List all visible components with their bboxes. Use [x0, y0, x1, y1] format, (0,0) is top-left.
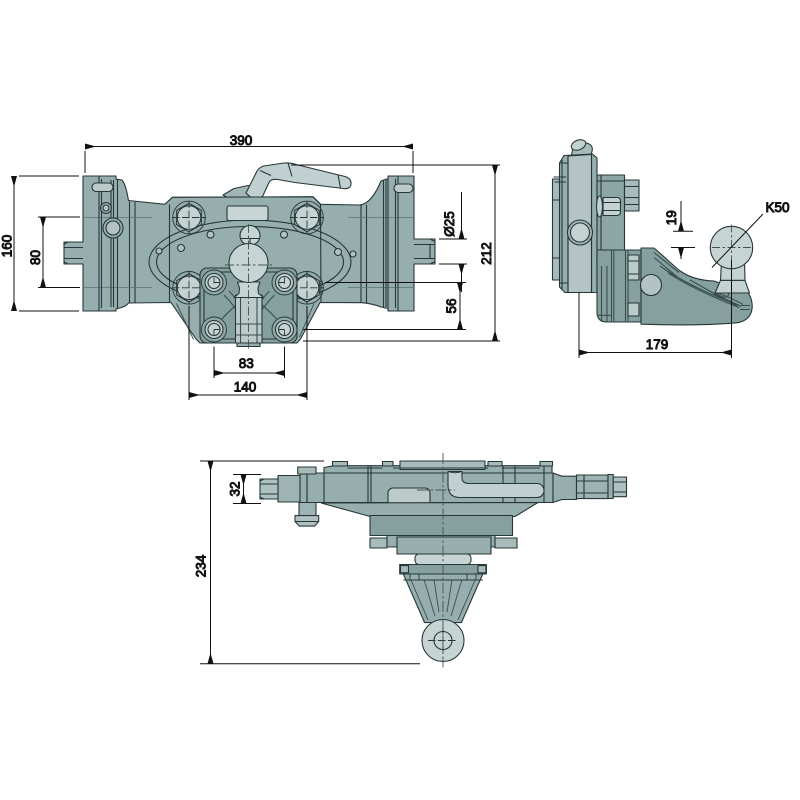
svg-text:80: 80 [28, 250, 43, 265]
svg-text:212: 212 [479, 242, 494, 265]
svg-text:179: 179 [646, 337, 669, 352]
svg-text:19: 19 [664, 210, 679, 225]
svg-text:32: 32 [228, 481, 243, 496]
svg-text:83: 83 [239, 356, 254, 371]
svg-text:140: 140 [234, 380, 257, 395]
svg-text:Ø25: Ø25 [442, 211, 457, 237]
svg-text:234: 234 [194, 554, 209, 577]
svg-text:160: 160 [0, 235, 15, 258]
svg-text:390: 390 [230, 133, 253, 148]
svg-text:K50: K50 [766, 200, 790, 215]
svg-text:56: 56 [444, 298, 459, 313]
